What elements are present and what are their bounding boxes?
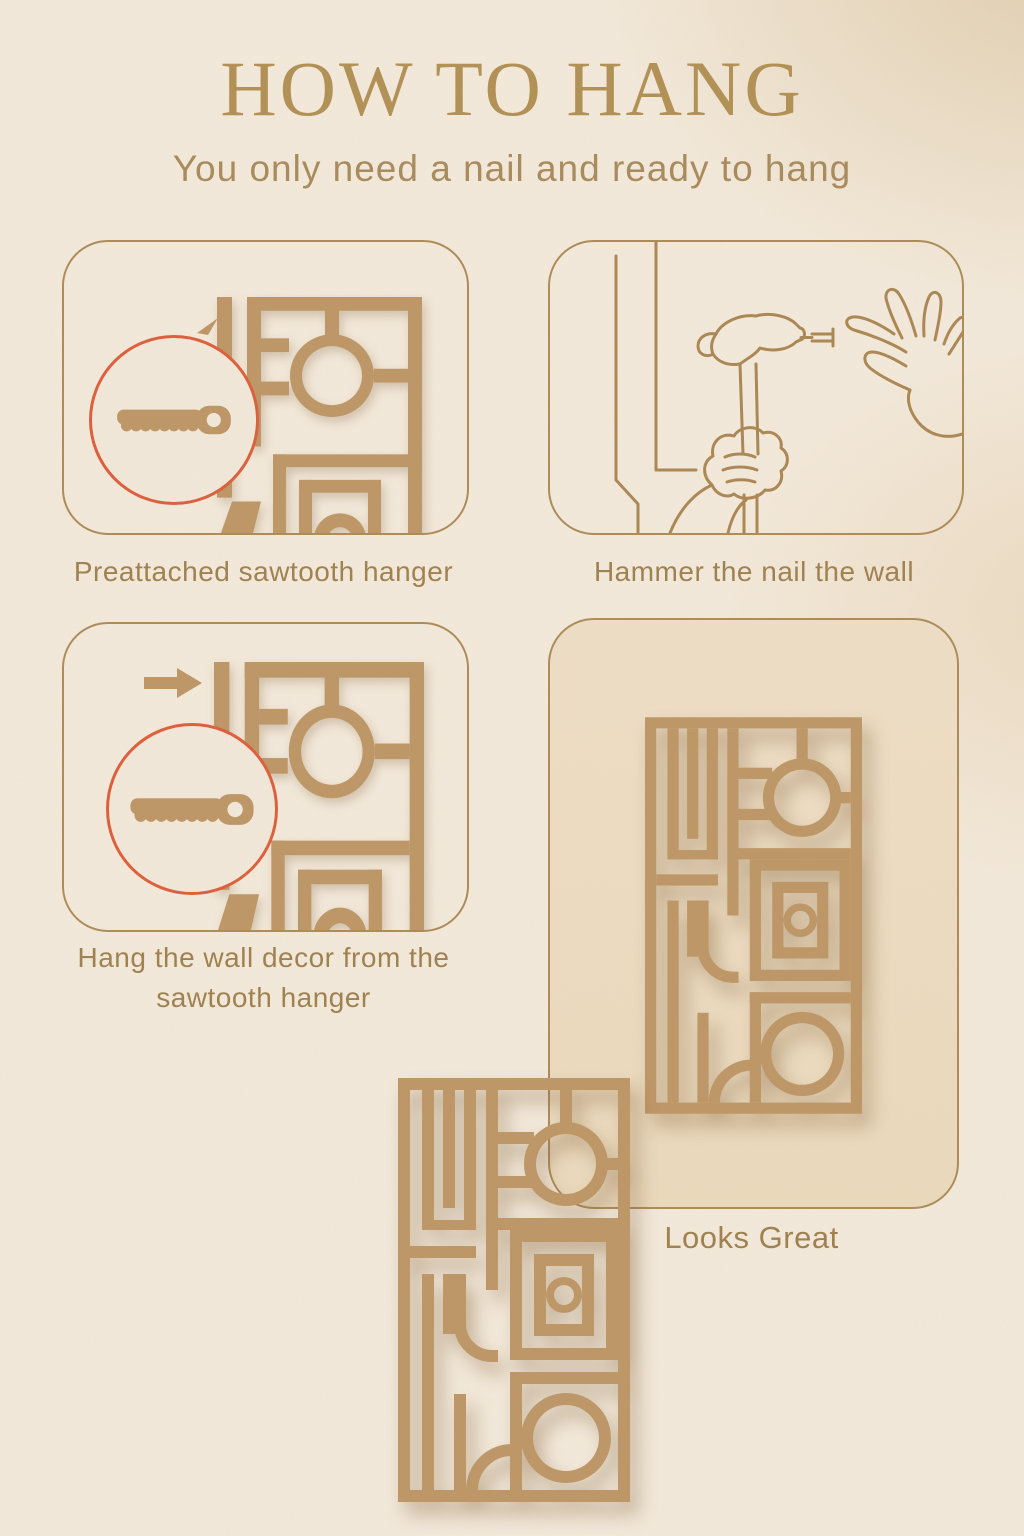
step1-caption: Preattached sawtooth hanger (62, 552, 465, 592)
sawtooth-hanger-icon (115, 402, 233, 438)
step2-caption: Hammer the nail the wall (548, 552, 960, 592)
hammer-and-nail-hands-icon (550, 242, 962, 533)
wall-decor-pattern (398, 1078, 630, 1502)
how-to-hang-poster: HOW TO HANG You only need a nail and rea… (0, 0, 1024, 1536)
wall-decor-pattern (645, 707, 862, 1124)
sawtooth-hanger-icon (128, 790, 256, 829)
step2-panel (548, 240, 964, 535)
arrow-right-icon (196, 316, 220, 336)
page-subtitle: You only need a nail and ready to hang (0, 148, 1024, 190)
step4-caption: Looks Great (548, 1216, 955, 1260)
hanger-highlight-circle (89, 335, 259, 505)
page-title: HOW TO HANG (0, 44, 1024, 134)
hanger-highlight-circle (106, 723, 278, 895)
step1-panel (62, 240, 469, 535)
step3-panel (62, 622, 469, 932)
step3-caption: Hang the wall decor from the sawtooth ha… (42, 938, 485, 1018)
arrow-right-icon (144, 668, 202, 698)
